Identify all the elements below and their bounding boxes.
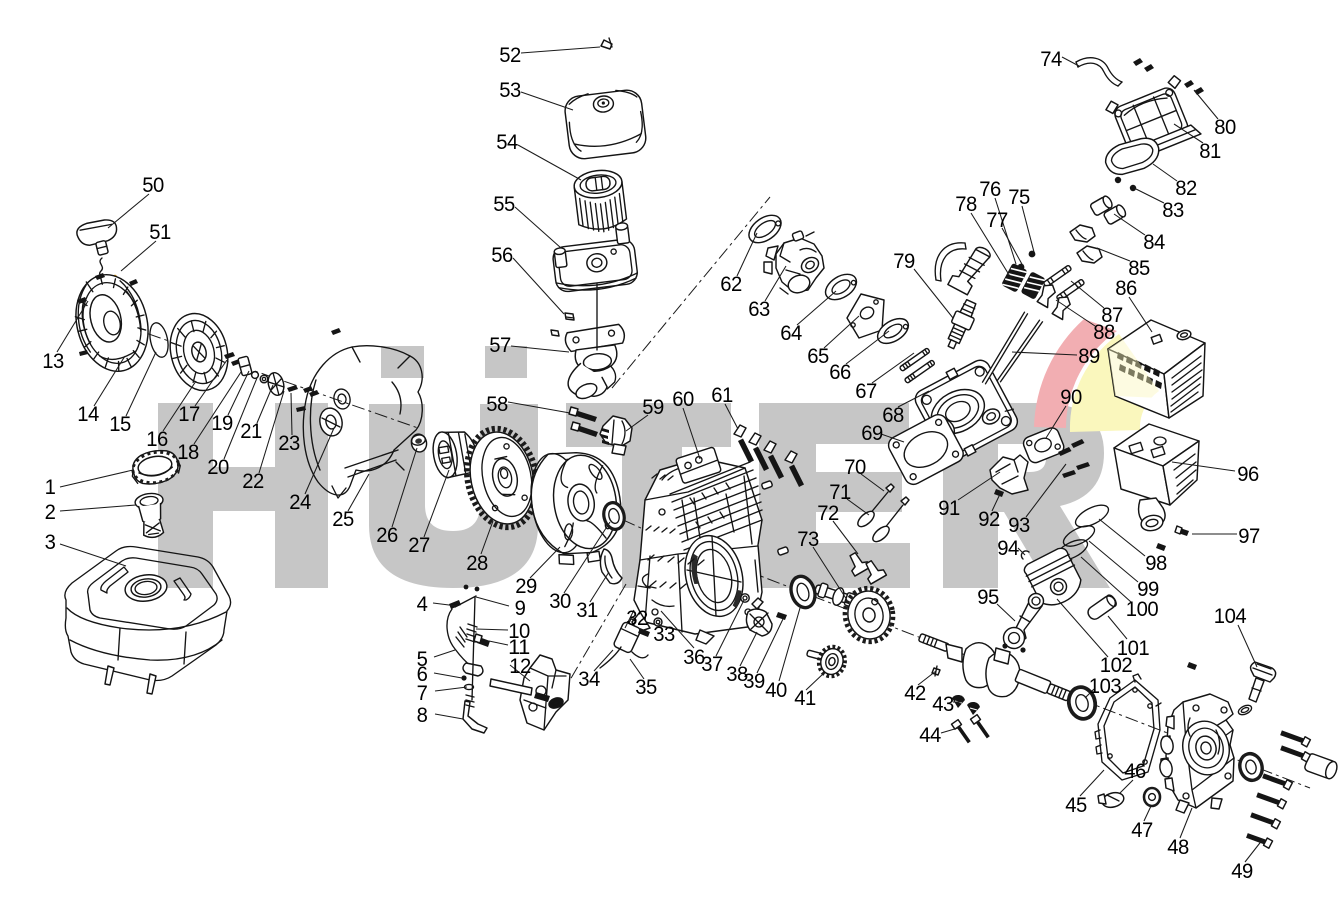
svg-text:34: 34 bbox=[578, 667, 600, 691]
svg-text:51: 51 bbox=[149, 220, 171, 244]
svg-text:18: 18 bbox=[177, 440, 199, 464]
svg-text:17: 17 bbox=[178, 402, 200, 426]
svg-text:81: 81 bbox=[1199, 139, 1221, 163]
svg-text:40: 40 bbox=[765, 678, 787, 702]
svg-text:7: 7 bbox=[417, 681, 428, 705]
svg-text:83: 83 bbox=[1162, 198, 1184, 222]
svg-text:96: 96 bbox=[1237, 462, 1259, 486]
svg-text:65: 65 bbox=[807, 344, 829, 368]
svg-text:66: 66 bbox=[829, 360, 851, 384]
svg-text:70: 70 bbox=[844, 455, 866, 479]
svg-text:19: 19 bbox=[211, 411, 233, 435]
svg-text:104: 104 bbox=[1214, 604, 1247, 628]
svg-text:12: 12 bbox=[509, 654, 531, 678]
svg-text:91: 91 bbox=[938, 496, 960, 520]
svg-text:27: 27 bbox=[408, 533, 430, 557]
svg-text:60: 60 bbox=[672, 387, 694, 411]
svg-text:67: 67 bbox=[855, 379, 877, 403]
svg-text:93: 93 bbox=[1008, 513, 1030, 537]
svg-text:69: 69 bbox=[861, 421, 883, 445]
svg-text:78: 78 bbox=[955, 192, 977, 216]
svg-text:37: 37 bbox=[701, 652, 723, 676]
svg-text:98: 98 bbox=[1145, 551, 1167, 575]
svg-text:100: 100 bbox=[1126, 597, 1159, 621]
svg-text:49: 49 bbox=[1231, 859, 1253, 883]
svg-text:14: 14 bbox=[77, 402, 99, 426]
svg-text:33: 33 bbox=[653, 622, 675, 646]
svg-text:77: 77 bbox=[986, 208, 1008, 232]
svg-text:48: 48 bbox=[1167, 835, 1189, 859]
svg-text:3: 3 bbox=[45, 530, 56, 554]
svg-text:64: 64 bbox=[780, 321, 802, 345]
svg-text:57: 57 bbox=[489, 333, 511, 357]
svg-text:29: 29 bbox=[515, 574, 537, 598]
svg-text:23: 23 bbox=[278, 431, 300, 455]
svg-text:90: 90 bbox=[1060, 385, 1082, 409]
svg-text:86: 86 bbox=[1115, 276, 1137, 300]
svg-text:26: 26 bbox=[376, 523, 398, 547]
svg-text:89: 89 bbox=[1078, 344, 1100, 368]
svg-text:9: 9 bbox=[515, 596, 526, 620]
svg-text:4: 4 bbox=[417, 592, 428, 616]
svg-text:74: 74 bbox=[1040, 47, 1062, 71]
svg-text:20: 20 bbox=[207, 455, 229, 479]
svg-text:92: 92 bbox=[978, 507, 1000, 531]
svg-text:39: 39 bbox=[743, 669, 765, 693]
svg-text:44: 44 bbox=[919, 723, 941, 747]
svg-text:28: 28 bbox=[466, 551, 488, 575]
svg-text:72: 72 bbox=[817, 501, 839, 525]
svg-text:35: 35 bbox=[635, 675, 657, 699]
svg-text:80: 80 bbox=[1214, 115, 1236, 139]
svg-text:73: 73 bbox=[797, 527, 819, 551]
svg-text:21: 21 bbox=[240, 419, 262, 443]
svg-text:2: 2 bbox=[45, 500, 56, 524]
svg-text:42: 42 bbox=[904, 681, 926, 705]
svg-text:79: 79 bbox=[893, 249, 915, 273]
svg-text:50: 50 bbox=[142, 173, 164, 197]
svg-text:52: 52 bbox=[499, 43, 521, 67]
svg-text:8: 8 bbox=[417, 703, 428, 727]
svg-text:68: 68 bbox=[882, 403, 904, 427]
svg-text:54: 54 bbox=[496, 130, 518, 154]
svg-text:58: 58 bbox=[486, 392, 508, 416]
svg-text:1: 1 bbox=[45, 475, 56, 499]
svg-text:41: 41 bbox=[794, 686, 816, 710]
svg-text:56: 56 bbox=[491, 243, 513, 267]
svg-text:94: 94 bbox=[997, 536, 1019, 560]
svg-text:47: 47 bbox=[1131, 818, 1153, 842]
svg-text:55: 55 bbox=[493, 192, 515, 216]
svg-text:62: 62 bbox=[720, 272, 742, 296]
svg-text:22: 22 bbox=[242, 469, 264, 493]
svg-text:97: 97 bbox=[1238, 524, 1260, 548]
svg-text:25: 25 bbox=[332, 507, 354, 531]
svg-text:88: 88 bbox=[1093, 320, 1115, 344]
svg-text:15: 15 bbox=[109, 412, 131, 436]
svg-text:16: 16 bbox=[146, 427, 168, 451]
svg-text:45: 45 bbox=[1065, 793, 1087, 817]
svg-text:32: 32 bbox=[626, 606, 648, 630]
svg-text:82: 82 bbox=[1175, 176, 1197, 200]
svg-text:75: 75 bbox=[1008, 185, 1030, 209]
svg-text:76: 76 bbox=[979, 177, 1001, 201]
svg-text:13: 13 bbox=[42, 349, 64, 373]
svg-text:30: 30 bbox=[549, 589, 571, 613]
svg-text:59: 59 bbox=[642, 395, 664, 419]
svg-text:46: 46 bbox=[1124, 759, 1146, 783]
svg-text:24: 24 bbox=[289, 490, 311, 514]
svg-text:43: 43 bbox=[932, 692, 954, 716]
svg-text:53: 53 bbox=[499, 78, 521, 102]
svg-text:84: 84 bbox=[1143, 230, 1165, 254]
svg-text:61: 61 bbox=[711, 383, 733, 407]
svg-text:31: 31 bbox=[576, 598, 598, 622]
svg-text:63: 63 bbox=[748, 297, 770, 321]
svg-text:103: 103 bbox=[1089, 674, 1122, 698]
svg-text:95: 95 bbox=[977, 585, 999, 609]
